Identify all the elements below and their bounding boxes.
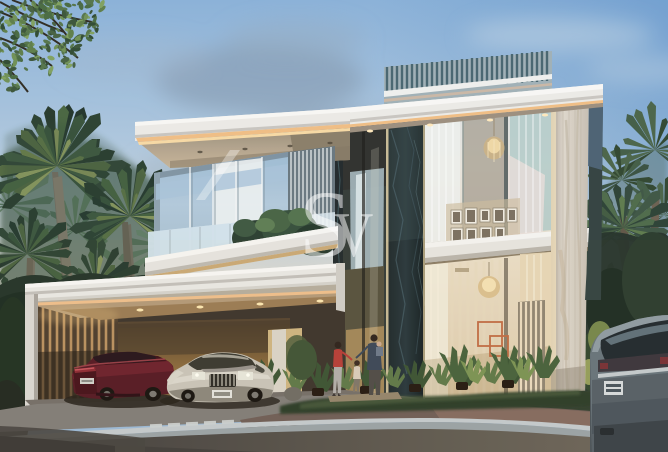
svg-text:V: V — [334, 199, 373, 270]
